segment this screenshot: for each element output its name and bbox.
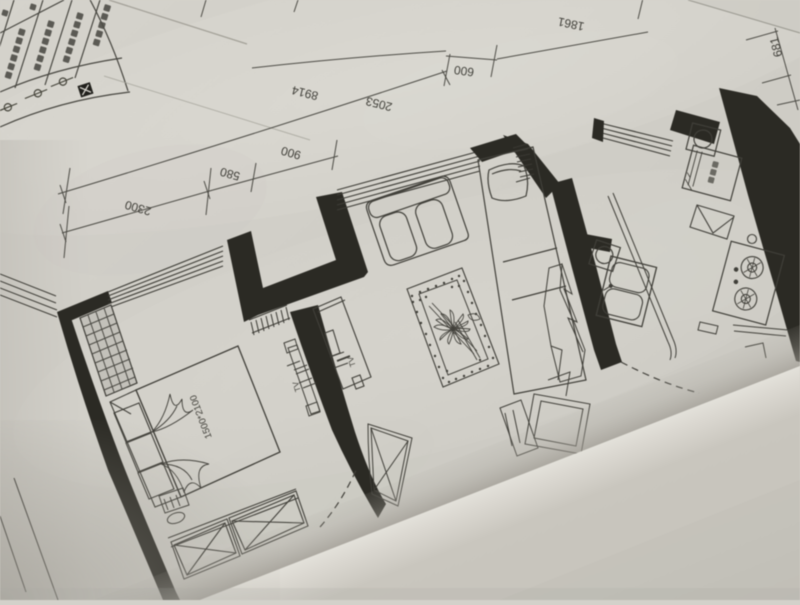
svg-text:600: 600	[453, 63, 475, 80]
